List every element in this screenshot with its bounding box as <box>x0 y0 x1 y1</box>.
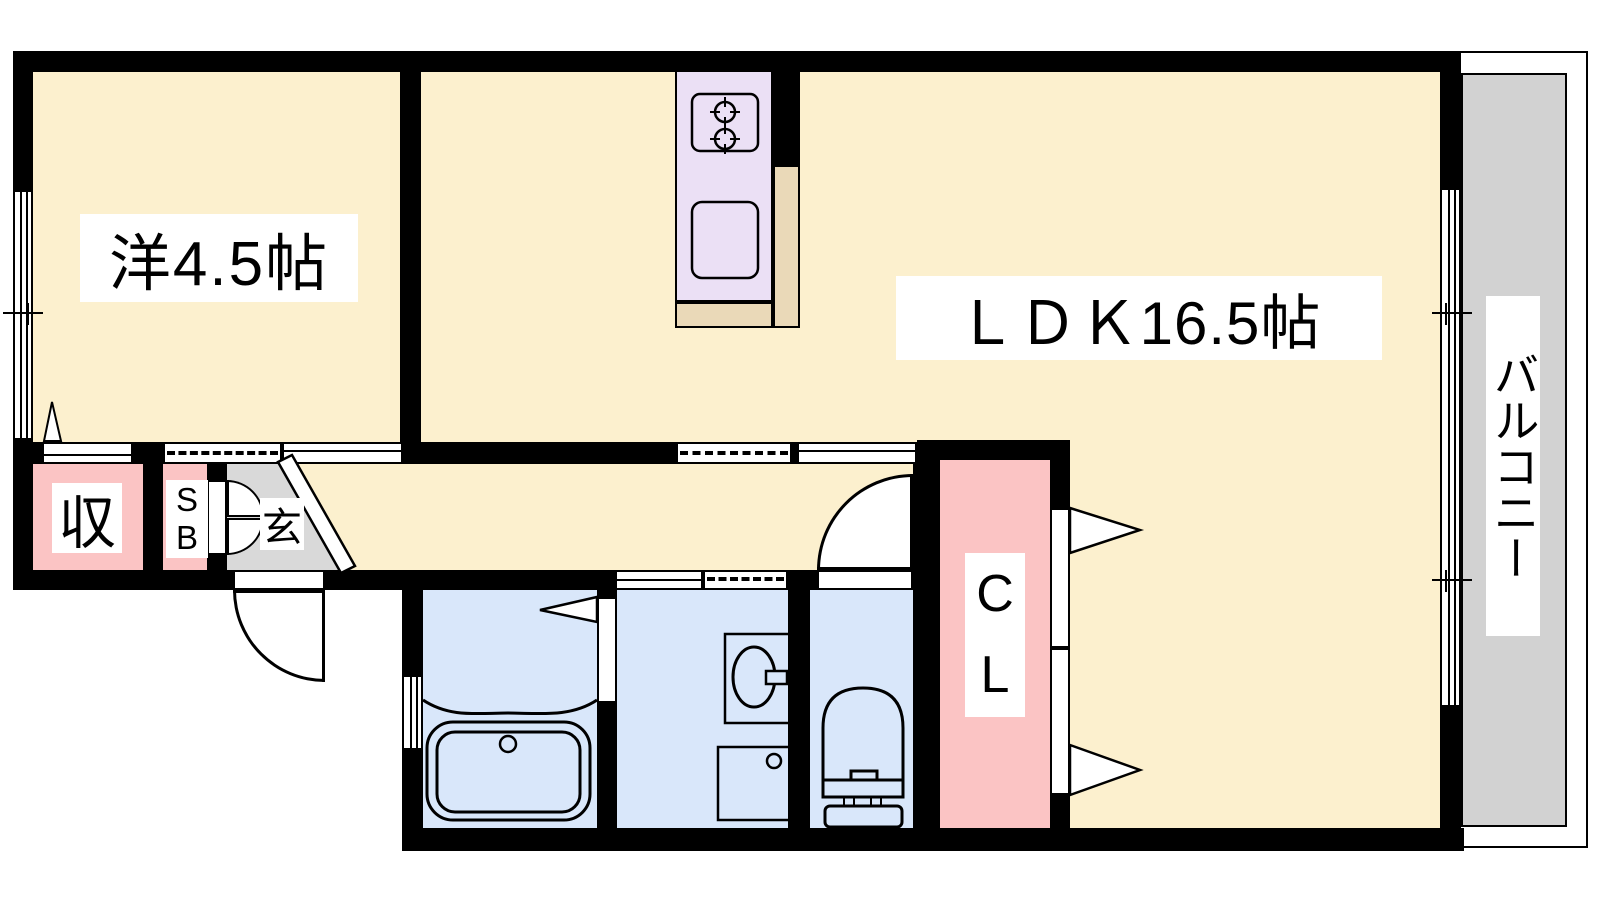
closet-bifold-icon-bottom <box>1070 745 1140 795</box>
bathtub-icon <box>423 700 597 820</box>
washer-pan-icon <box>718 747 790 820</box>
washbasin-icon <box>725 634 790 723</box>
closet-label: C L <box>965 553 1025 717</box>
storage-label: 収 <box>52 483 122 553</box>
western-room-label: 洋4.5帖 <box>80 214 358 302</box>
closet-bifold-icon-top <box>1070 508 1140 553</box>
balcony-label: バルコニー <box>1486 296 1540 636</box>
shoebox-label: S B <box>166 480 208 558</box>
entrance-label: 玄 <box>260 498 304 550</box>
kitchen-sink-icon <box>692 202 758 278</box>
storage-door-marker-icon <box>44 402 61 441</box>
toilet-icon <box>823 688 903 827</box>
stove-icon <box>692 94 758 154</box>
bathroom-folding-door-icon <box>540 597 597 622</box>
floorplan: 洋4.5帖 ＬＤＫ16.5帖 収 S B 玄 C L バルコニー <box>0 0 1600 900</box>
ldk-label: ＬＤＫ16.5帖 <box>896 276 1382 360</box>
fixtures-layer <box>0 0 1600 900</box>
